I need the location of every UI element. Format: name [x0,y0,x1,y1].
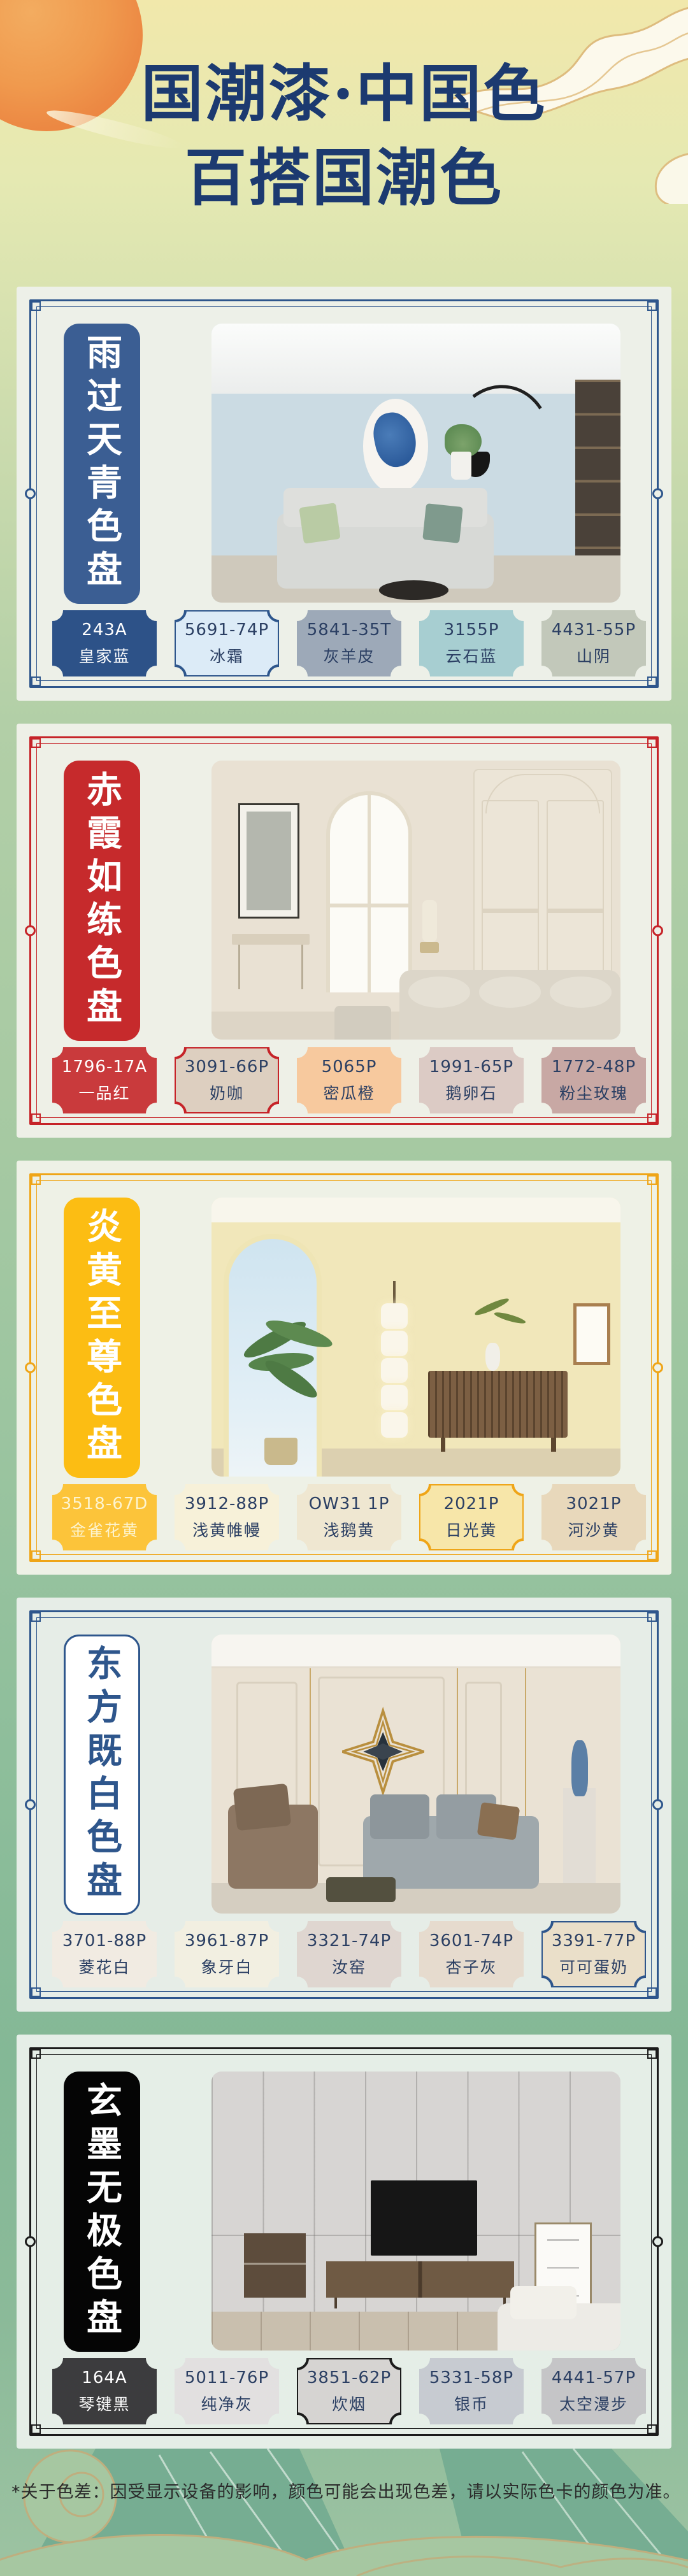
scene-pillow [299,503,341,543]
palette-tab: 炎黄至尊色盘 [64,1198,140,1478]
scene-pillow [477,1802,519,1840]
swatch-code: 4441-57P [552,2368,636,2387]
frame-corner-ornament [647,301,657,311]
room-scene [211,1198,620,1477]
palette-tab: 雨过天青色盘 [64,324,140,604]
color-swatch: 164A琴键黑 [52,2358,157,2424]
swatch-row: 3518-67D金雀花黄 3912-88P浅黄帷幔 OW31 1P浅鹅黄 202… [52,1484,646,1550]
color-swatch: 1796-17A一品红 [52,1047,157,1113]
frame-corner-ornament [31,301,41,311]
swatch-name: 菱花白 [78,1955,130,1978]
frame-corner-ornament [647,738,657,748]
swatch-name: 金雀花黄 [70,1518,139,1541]
scene-paper-lantern-lamp [381,1303,408,1437]
scene-side-cabinet [244,2233,305,2298]
header: 国潮漆·中国色 百搭国潮色 [0,0,688,287]
swatch-name: 灰羊皮 [323,644,375,667]
footer: *关于色差：因受显示设备的影响，颜色可能会出现色差，请以实际色卡的颜色为准。 [0,2449,688,2576]
scene-lamp-base [420,942,439,954]
color-swatch: 5011-76P纯净灰 [175,2358,279,2424]
swatch-name: 银币 [454,2392,489,2415]
palette-tab: 赤霞如练色盘 [64,761,140,1041]
frame-corner-ornament [647,676,657,686]
scene-plant-pot [264,1438,297,1466]
color-swatch: 3912-88P浅黄帷幔 [175,1484,279,1550]
room-photo [211,2072,620,2351]
swatch-code: 4431-55P [552,620,636,640]
scene-wall-art [240,805,297,917]
scene-sideboard-leg [551,1438,556,1452]
color-swatch: 4441-57P太空漫步 [541,2358,646,2424]
frame-corner-ornament [647,2424,657,2434]
swatch-name: 日光黄 [445,1518,497,1541]
swatch-code: 3601-74P [429,1931,513,1950]
scene-sofa-cushion [550,977,612,1007]
scene-ceiling [211,324,620,394]
color-swatch: 3701-88P菱花白 [52,1921,157,1987]
swatch-code: 5841-35T [307,620,392,640]
swatch-name: 纯净灰 [201,2392,252,2415]
swatch-code: 243A [82,620,127,640]
room-photo [211,1635,620,1914]
frame-corner-ornament [31,1113,41,1123]
scene-sofa [399,970,620,1040]
frame-notch-left [25,1800,36,1810]
color-swatch: 3518-67D金雀花黄 [52,1484,157,1550]
scene-sideboard-leg [441,1438,446,1452]
color-swatch: 3391-77P可可蛋奶 [541,1921,646,1987]
scene-ceiling [211,1635,620,1668]
scene-table-lamp [422,900,437,942]
swatch-name: 象牙白 [201,1955,252,1978]
palette-card-dongfangjibai: 东方既白色盘 [17,1598,671,2012]
scene-sofa [498,2303,620,2351]
color-swatch: 1772-48P粉尘玫瑰 [541,1047,646,1113]
page-title: 国潮漆·中国色 百搭国潮色 [0,52,688,220]
swatch-name: 浅鹅黄 [323,1518,375,1541]
scene-art-ink [369,408,420,471]
swatch-row: 3701-88P菱花白 3961-87P象牙白 3321-74P汝窑 3601-… [52,1921,646,1987]
frame-notch-left [25,926,36,936]
color-swatch: 5841-35T灰羊皮 [297,610,401,676]
scene-coffee-table [379,580,448,600]
swatch-code: 5691-74P [185,620,269,640]
swatch-code: 1772-48P [552,1057,636,1077]
swatch-name: 汝窑 [332,1955,366,1978]
scene-tv [371,2180,477,2256]
frame-notch-left [25,2236,36,2247]
frame-corner-ornament [31,1550,41,1560]
color-swatch: 3601-74P杏子灰 [419,1921,524,1987]
swatch-name: 冰霜 [210,644,244,667]
frame-corner-ornament [647,1113,657,1123]
scene-tv-cabinet [326,2261,514,2298]
scene-wall-art [573,1303,610,1364]
scene-coffee-table [326,1877,396,1902]
scene-stool [334,1006,392,1040]
swatch-code: 3518-67D [61,1494,148,1513]
frame-corner-ornament [31,1175,41,1185]
room-photo [211,761,620,1040]
palette-card-yuguotianqing: 雨过天青色盘 243 [17,287,671,701]
frame-notch-right [652,1800,663,1810]
palette-card-xuanmowuji: 玄墨无极色盘 164A琴键黑 [17,2035,671,2449]
room-scene [211,324,620,603]
scene-table-legs [238,945,304,989]
swatch-code: 3851-62P [307,2368,391,2387]
scene-sofa-cushion [510,2286,577,2319]
color-swatch: 5331-58P银币 [419,2358,524,2424]
color-swatch: 1991-65P鹅卵石 [419,1047,524,1113]
frame-corner-ornament [647,2049,657,2059]
swatch-code: 3021P [566,1494,622,1513]
frame-corner-ornament [31,1987,41,1997]
frame-corner-ornament [31,738,41,748]
swatch-code: 2021P [444,1494,499,1513]
scene-chair-cushion [233,1784,291,1831]
swatch-name: 皇家蓝 [78,644,130,667]
swatch-name: 太空漫步 [559,2392,628,2415]
room-scene [211,761,620,1040]
frame-corner-ornament [647,1612,657,1622]
swatch-name: 奶咖 [210,1081,244,1104]
swatch-name: 河沙黄 [568,1518,619,1541]
frame-notch-left [25,1363,36,1373]
swatch-name: 一品红 [78,1081,130,1104]
color-swatch: 243A皇家蓝 [52,610,157,676]
frame-notch-right [652,1363,663,1373]
frame-corner-ornament [31,1612,41,1622]
color-swatch: 5065P密瓜橙 [297,1047,401,1113]
frame-notch-right [652,926,663,936]
room-photo [211,1198,620,1477]
swatch-code: 3321-74P [307,1931,391,1950]
palette-card-chixiarulian: 赤霞如练色盘 [17,724,671,1138]
frame-notch-left [25,489,36,499]
swatch-code: 3155P [444,620,499,640]
scene-star-decor [342,1701,424,1802]
swatch-code: 5065P [322,1057,377,1077]
color-disclaimer-note: *关于色差：因受显示设备的影响，颜色可能会出现色差，请以实际色卡的颜色为准。 [11,2478,681,2503]
scene-arched-window [326,791,412,992]
scene-console-table [232,934,310,945]
scene-armchair [228,1805,318,1888]
swatch-name: 浅黄帷幔 [192,1518,261,1541]
swatch-name: 琴键黑 [78,2392,130,2415]
swatch-code: 3091-66P [185,1057,269,1077]
wave-decor-icon [0,2449,688,2576]
scene-pedestal [563,1788,596,1883]
frame-corner-ornament [647,1175,657,1185]
scene-vase [485,1343,500,1371]
color-swatch: 3321-74P汝窑 [297,1921,401,1987]
scene-wall-art [363,399,429,494]
frame-corner-ornament [31,2049,41,2059]
color-swatch: 3155P云石蓝 [419,610,524,676]
room-scene [211,2072,620,2351]
palette-card-yanhuangzhizun: 炎黄至尊色盘 [17,1161,671,1575]
scene-sofa-cushion [408,977,470,1007]
scene-plant-pot [451,452,471,480]
swatch-code: 5011-76P [185,2368,269,2387]
frame-notch-right [652,489,663,499]
scene-bookshelf [575,380,620,555]
swatch-code: 3961-87P [185,1931,269,1950]
swatch-code: 3912-88P [185,1494,269,1513]
scene-pillow [422,503,462,543]
frame-corner-ornament [647,1987,657,1997]
color-swatch: 3961-87P象牙白 [175,1921,279,1987]
swatch-name: 鹅卵石 [445,1081,497,1104]
swatch-code: 1796-17A [62,1057,147,1077]
room-scene [211,1635,620,1914]
poster-page: 国潮漆·中国色 百搭国潮色 雨过天青色盘 [0,0,688,2576]
palette-tab: 东方既白色盘 [64,1635,140,1915]
frame-corner-ornament [31,676,41,686]
swatch-name: 山阴 [577,644,611,667]
swatch-row: 1796-17A一品红 3091-66P奶咖 5065P密瓜橙 1991-65P… [52,1047,646,1113]
swatch-name: 粉尘玫瑰 [559,1081,628,1104]
swatch-row: 164A琴键黑 5011-76P纯净灰 3851-62P炊烟 5331-58P银… [52,2358,646,2424]
scene-sculpture [571,1740,588,1796]
color-swatch: 2021P日光黄 [419,1484,524,1550]
scene-sofa-cushion [370,1794,430,1840]
room-photo [211,324,620,603]
frame-corner-ornament [31,2424,41,2434]
frame-notch-right [652,2236,663,2247]
color-swatch: 4431-55P山阴 [541,610,646,676]
scene-sideboard [428,1371,567,1438]
swatch-code: 3701-88P [62,1931,147,1950]
swatch-name: 云石蓝 [445,644,497,667]
swatch-code: 1991-65P [429,1057,513,1077]
color-swatch: OW31 1P浅鹅黄 [297,1484,401,1550]
swatch-name: 密瓜橙 [323,1081,375,1104]
palette-tab: 玄墨无极色盘 [64,2072,140,2352]
swatch-code: 5331-58P [429,2368,513,2387]
page-title-line1: 国潮漆·中国色 [0,52,688,136]
color-swatch: 3021P河沙黄 [541,1484,646,1550]
page-title-line2: 百搭国潮色 [0,136,688,220]
frame-corner-ornament [647,1550,657,1560]
swatch-code: 164A [82,2368,127,2387]
swatch-code: OW31 1P [309,1494,390,1513]
color-swatch: 3851-62P炊烟 [297,2358,401,2424]
color-swatch: 3091-66P奶咖 [175,1047,279,1113]
scene-sofa-cushion [479,977,541,1007]
color-swatch: 5691-74P冰霜 [175,610,279,676]
scene-ceiling [211,1198,620,1222]
scene-cabinet-legs [334,2298,506,2309]
scene-lamp-rod [393,1281,396,1303]
swatch-name: 可可蛋奶 [559,1955,628,1978]
swatch-name: 炊烟 [332,2392,366,2415]
swatch-row: 243A皇家蓝 5691-74P冰霜 5841-35T灰羊皮 3155P云石蓝 … [52,610,646,676]
swatch-code: 3391-77P [552,1931,636,1950]
swatch-name: 杏子灰 [445,1955,497,1978]
